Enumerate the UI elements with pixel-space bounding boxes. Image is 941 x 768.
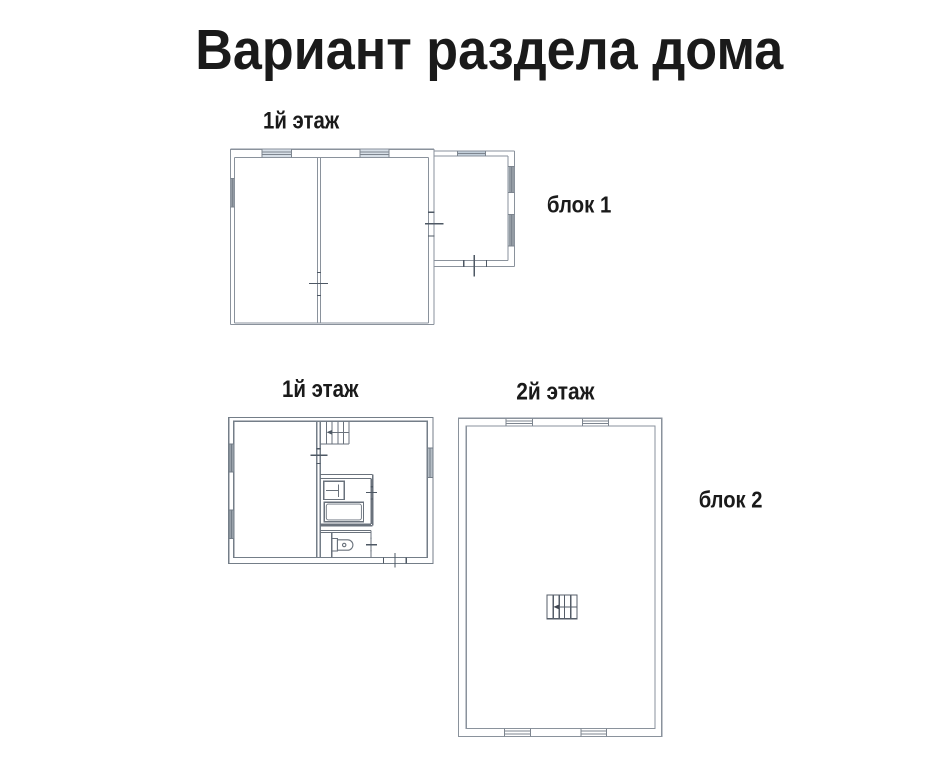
svg-text:1й этаж: 1й этаж: [263, 108, 340, 135]
svg-text:1й этаж: 1й этаж: [282, 376, 359, 403]
svg-text:2й этаж: 2й этаж: [516, 379, 595, 406]
svg-text:Вариант раздела дома: Вариант раздела дома: [195, 18, 784, 82]
svg-text:блок 1: блок 1: [547, 192, 612, 218]
svg-text:блок 2: блок 2: [699, 487, 763, 513]
